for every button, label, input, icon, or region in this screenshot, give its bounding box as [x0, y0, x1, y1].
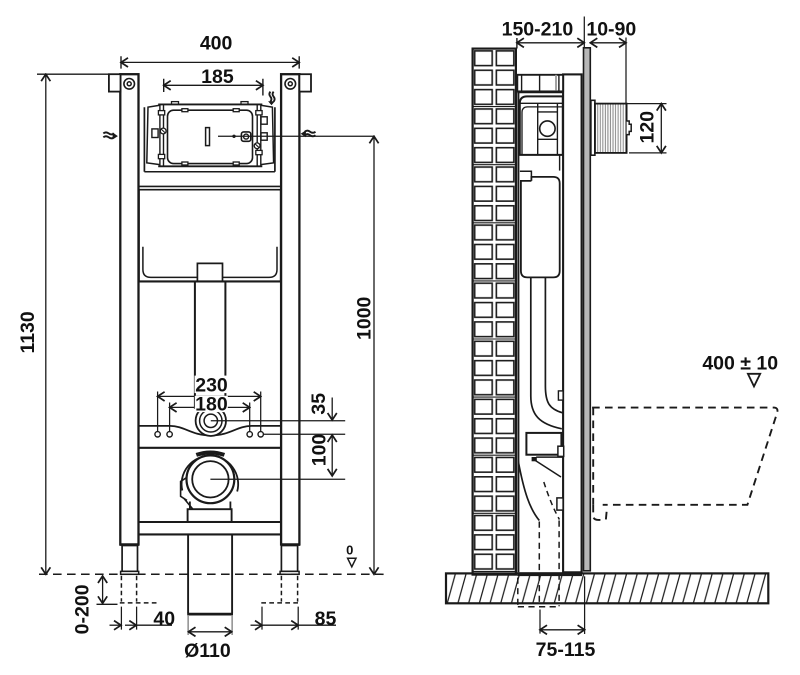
svg-text:100: 100	[309, 434, 331, 467]
svg-text:1000: 1000	[354, 296, 376, 340]
svg-text:Ø110: Ø110	[184, 640, 231, 662]
svg-text:185: 185	[201, 66, 234, 88]
svg-text:0-200: 0-200	[71, 584, 93, 634]
svg-text:0: 0	[346, 542, 353, 557]
svg-text:180: 180	[195, 393, 228, 415]
svg-text:35: 35	[308, 393, 330, 415]
svg-text:40: 40	[153, 608, 175, 630]
svg-text:1130: 1130	[17, 311, 39, 353]
svg-text:150-210: 150-210	[502, 19, 574, 41]
svg-text:75-115: 75-115	[536, 639, 596, 661]
svg-text:400 ± 10: 400 ± 10	[702, 352, 778, 374]
svg-text:85: 85	[315, 608, 337, 630]
svg-text:10-90: 10-90	[586, 19, 636, 41]
svg-text:400: 400	[200, 33, 233, 55]
svg-text:120: 120	[637, 111, 659, 144]
